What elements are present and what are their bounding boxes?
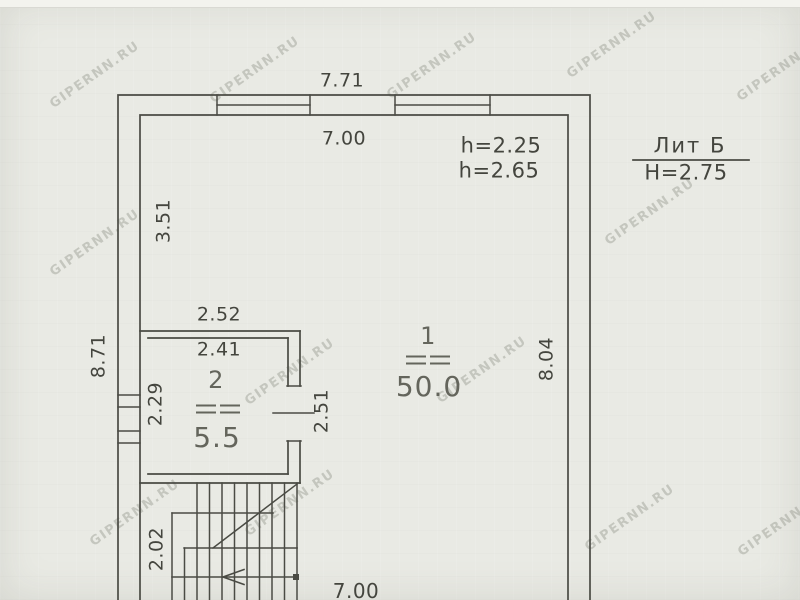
room2-area-label: 5.5 [193,424,241,452]
ceiling-height-2: h=2.65 [459,161,540,182]
ceiling-height-1: h=2.25 [461,136,542,157]
litera-label: Лит Б [654,136,727,157]
dimension-room2-height-left: 2.29 [147,382,166,426]
dimension-right-inner: 8.04 [538,337,557,381]
dimension-top-inner: 7.00 [322,130,366,149]
dimension-top-outer: 7.71 [320,72,364,91]
dimension-room2-width-outer: 2.52 [197,306,241,325]
dimension-bottom-inner: 7.00 [333,581,380,600]
window-left-wall [118,395,140,443]
room2-label-separator [197,406,239,413]
plan-drawing [0,0,800,600]
stair-direction-arrow [172,570,299,585]
building-height-label: Н=2.75 [644,163,727,184]
staircase [172,483,297,600]
window-top-left [217,95,310,115]
dimension-room2-width-inner: 2.41 [197,341,241,360]
room1-area-label: 50.0 [396,373,462,401]
room1-number-label: 1 [420,324,436,348]
room2-number-label: 2 [208,368,224,392]
window-top-right [395,95,490,115]
dimension-left-inner-upper: 3.51 [155,199,174,243]
room1-label-separator [407,357,449,364]
room2-door [273,386,314,441]
arrow-start-dot [293,574,299,580]
dimension-room2-door-side: 2.51 [313,389,332,433]
dimension-left-outer: 8.71 [90,334,109,378]
dimension-stair-width: 2.02 [148,527,167,571]
floor-plan-scan: GIPERNN.RU GIPERNN.RU GIPERNN.RU GIPERNN… [0,0,800,600]
